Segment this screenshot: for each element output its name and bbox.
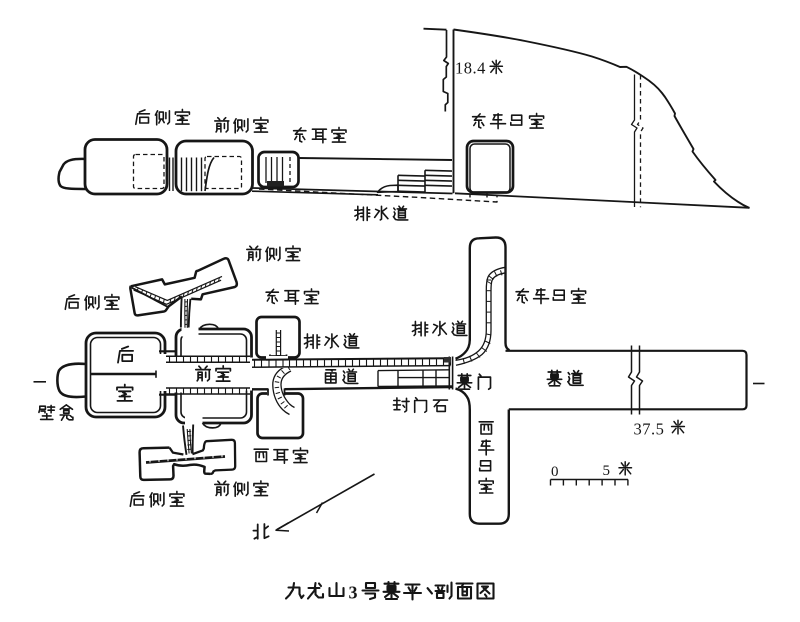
svg-text:5: 5 (603, 463, 611, 479)
svg-text:0: 0 (551, 464, 559, 480)
svg-text:18.4: 18.4 (455, 59, 486, 78)
svg-text:37.5: 37.5 (634, 420, 665, 439)
svg-text:3: 3 (349, 583, 358, 603)
